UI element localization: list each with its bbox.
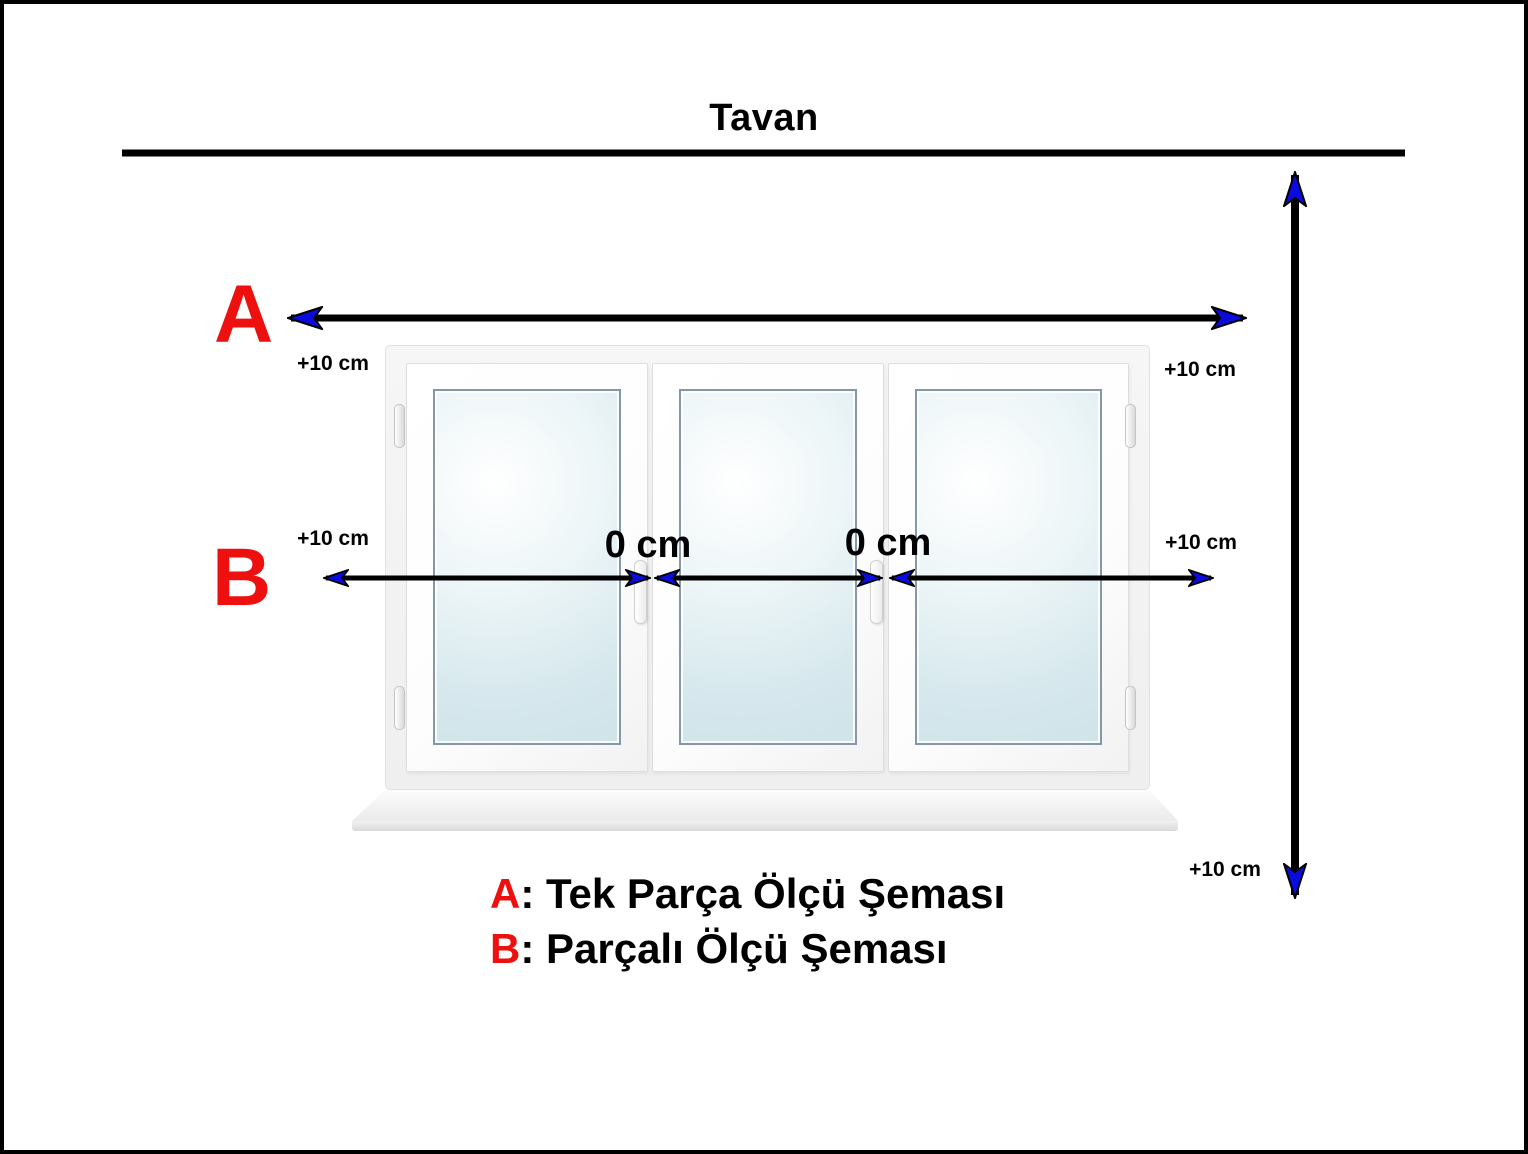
window-handle [634, 560, 647, 624]
offset-label-mid-right: +10 cm [1165, 531, 1237, 555]
window-glass [915, 389, 1102, 745]
window-hinge [1125, 686, 1136, 730]
window-sash-right [888, 363, 1129, 772]
scheme-b-label: B [212, 537, 271, 619]
legend-item-b: B: Parçalı Ölçü Şeması [490, 921, 1005, 976]
legend-text-b: : Parçalı Ölçü Şeması [520, 925, 947, 972]
legend: A: Tek Parça Ölçü Şeması B: Parçalı Ölçü… [490, 866, 1005, 976]
window-hinge [394, 404, 405, 448]
measurement-diagram: Tavan A B +10 cm +10 cm +10 cm +10 cm +1… [0, 0, 1528, 1154]
legend-key-b: B [490, 925, 520, 972]
window-handle [870, 560, 883, 624]
window-glass [679, 389, 857, 745]
offset-label-top-left: +10 cm [297, 352, 369, 376]
legend-item-a: A: Tek Parça Ölçü Şeması [490, 866, 1005, 921]
window-hinge [394, 686, 405, 730]
window-sash-left [406, 363, 648, 772]
ceiling-label: Tavan [0, 97, 1528, 140]
window-sill-edge [352, 821, 1178, 831]
offset-label-mid-left: +10 cm [297, 527, 369, 551]
window-hinge [1125, 404, 1136, 448]
gap-label-right: 0 cm [845, 522, 932, 565]
legend-key-a: A [490, 870, 520, 917]
window-sash-center [652, 363, 884, 772]
offset-label-bottom: +10 cm [1189, 858, 1261, 882]
scheme-a-label: A [214, 274, 273, 356]
window-sill [352, 790, 1178, 821]
offset-label-top-right: +10 cm [1164, 358, 1236, 382]
gap-label-left: 0 cm [605, 524, 692, 567]
window-glass [433, 389, 621, 745]
legend-text-a: : Tek Parça Ölçü Şeması [520, 870, 1005, 917]
